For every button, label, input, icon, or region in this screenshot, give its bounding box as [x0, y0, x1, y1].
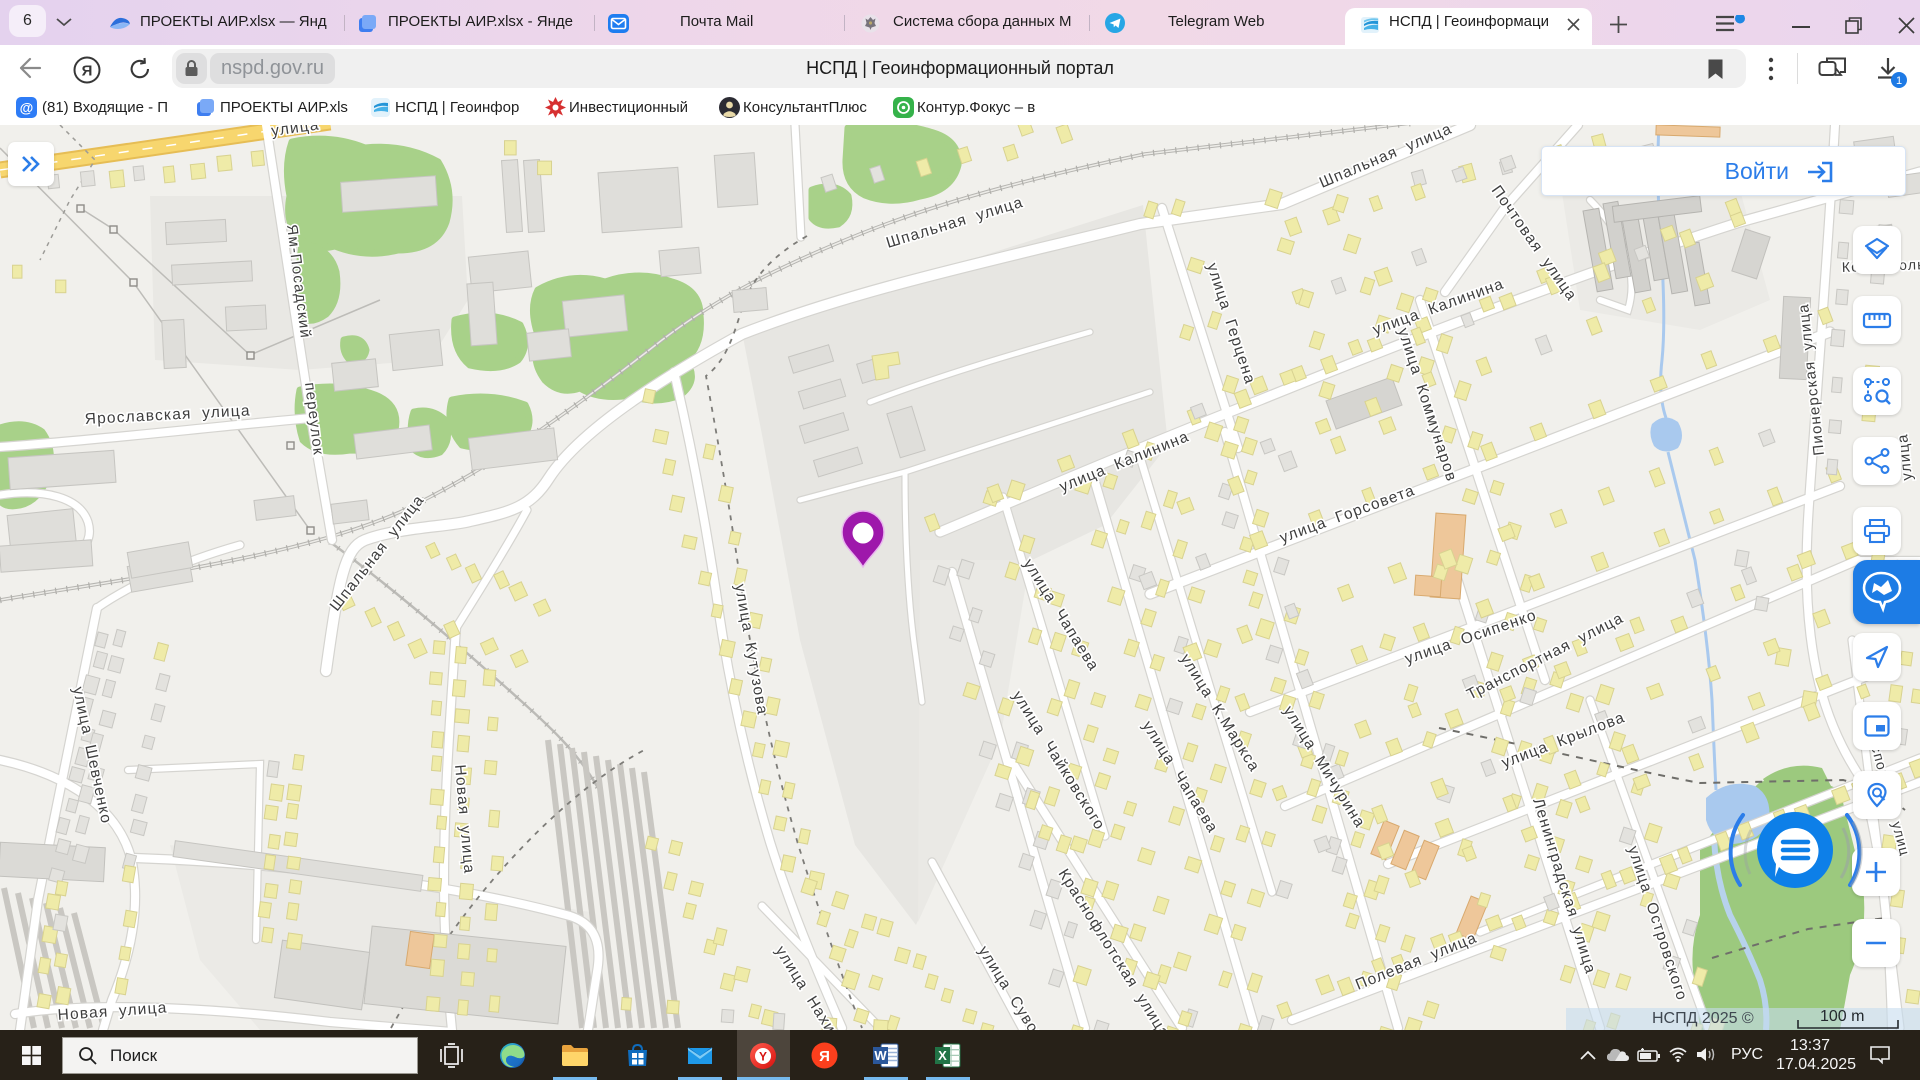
- svg-text:W: W: [874, 1048, 887, 1063]
- svg-text:1: 1: [1896, 75, 1902, 87]
- svg-text:Я: Я: [819, 1048, 830, 1065]
- svg-text:X: X: [938, 1048, 947, 1063]
- svg-text:Я: Я: [82, 63, 93, 80]
- svg-text:@: @: [20, 100, 34, 116]
- svg-text:Y: Y: [759, 1050, 767, 1064]
